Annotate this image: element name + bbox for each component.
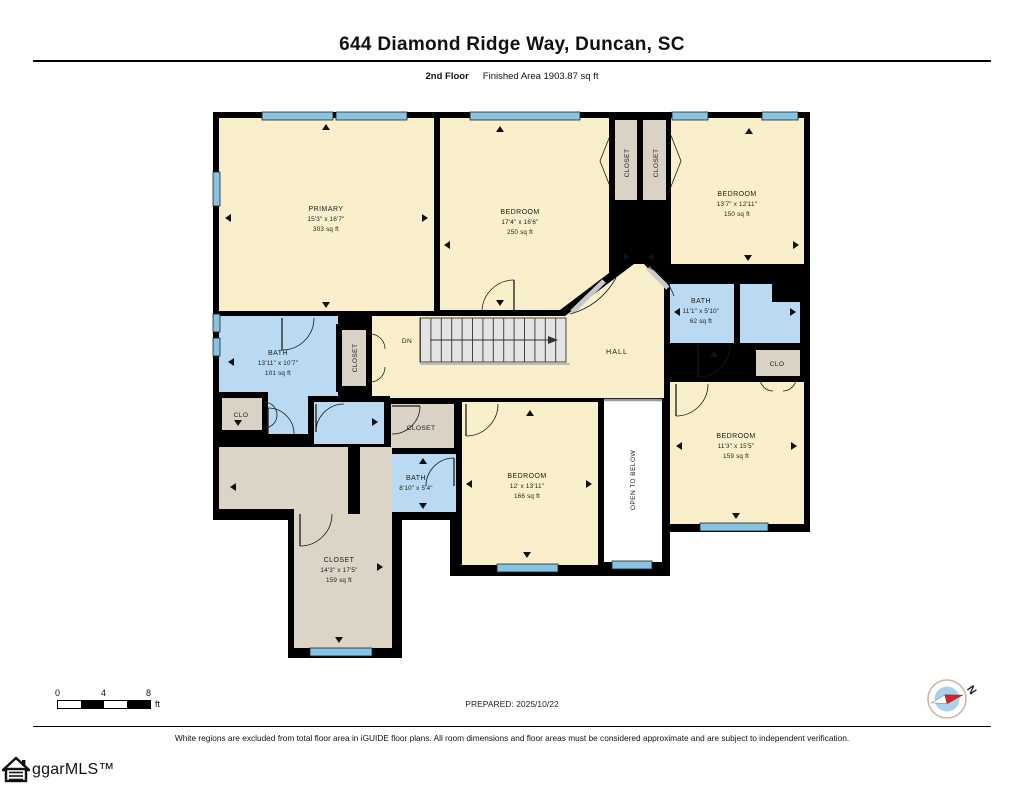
room-primary: PRIMARY 15'3" x 16'7" 303 sq ft — [219, 118, 434, 311]
room-open-to-below: OPEN TO BELOW — [604, 400, 662, 562]
room-label: CLO — [770, 361, 785, 368]
room-label: CLOSET — [624, 149, 631, 178]
room-closet-top-a: CLOSET — [615, 120, 637, 207]
room-label: CLOSET — [653, 149, 660, 178]
room-dims: 14'3" x 17'5" — [320, 567, 357, 574]
room-label: OPEN TO BELOW — [630, 449, 637, 510]
room-bedroom-mid: BEDROOM 12' x 13'11" 166 sq ft — [462, 402, 598, 565]
stairs-dn-label: DN — [402, 338, 412, 345]
room-label: BATH — [268, 350, 288, 357]
prepared-date: PREPARED: 2025/10/22 — [0, 699, 1024, 709]
room-label: CLO — [234, 412, 249, 419]
room-dims: 11'1" x 5'10" — [683, 308, 720, 315]
room-label: CLOSET — [407, 425, 436, 432]
disclaimer-text: White regions are excluded from total fl… — [0, 733, 1024, 743]
room-area: 303 sq ft — [313, 226, 339, 233]
room-label: CLOSET — [324, 557, 355, 564]
room-dims: 11'3" x 15'5" — [718, 443, 755, 450]
room-area: 62 sq ft — [690, 318, 712, 325]
room-label: PRIMARY — [309, 206, 344, 213]
room-closet-mid: CLOSET — [385, 398, 460, 456]
room-closet-big: CLOSET 14'3" x 17'5" 159 sq ft — [213, 447, 392, 648]
mls-logo-text: ggarMLS™ — [32, 761, 115, 779]
room-toilet — [308, 396, 390, 450]
room-area: 150 sq ft — [724, 211, 750, 218]
room-label: BEDROOM — [716, 433, 755, 440]
room-clo-right: CLO — [756, 350, 800, 376]
room-label: BATH — [406, 475, 426, 482]
scale-tick-0: 0 — [55, 688, 60, 698]
room-dims: 12' x 13'11" — [510, 483, 544, 490]
room-area: 166 sq ft — [514, 493, 540, 500]
floorplan-page: 644 Diamond Ridge Way, Duncan, SC 2nd Fl… — [0, 0, 1024, 791]
room-label: BEDROOM — [500, 209, 539, 216]
footer-divider — [33, 726, 991, 727]
room-area: 250 sq ft — [507, 229, 533, 236]
house-icon — [2, 756, 30, 784]
room-label: BEDROOM — [717, 191, 756, 198]
room-dims: 8'10" x 5'4" — [399, 485, 432, 492]
room-area: 101 sq ft — [265, 370, 291, 377]
room-label: HALL — [606, 347, 628, 356]
room-label: BATH — [691, 298, 711, 305]
room-dims: 17'4" x 16'6" — [501, 219, 538, 226]
room-area: 159 sq ft — [326, 577, 352, 584]
room-area: 159 sq ft — [723, 453, 749, 460]
room-closet-stairs: CLOSET — [336, 324, 372, 392]
mls-logo: ggarMLS™ — [2, 756, 115, 784]
room-bedroom-right-top: BEDROOM 13'7" x 12'11" 150 sq ft — [671, 118, 804, 264]
room-dims: 13'7" x 12'11" — [717, 201, 757, 208]
scale-tick-8: 8 — [146, 688, 151, 698]
room-clo-left: CLO — [216, 392, 268, 436]
room-label: BEDROOM — [507, 473, 546, 480]
room-bedroom-top: BEDROOM 17'4" x 16'6" 250 sq ft — [440, 118, 609, 310]
scale-tick-4: 4 — [101, 688, 106, 698]
room-dims: 15'3" x 16'7" — [307, 216, 344, 223]
room-label: CLOSET — [352, 344, 359, 373]
room-dims: 13'11" x 10'7" — [258, 360, 298, 367]
staircase: DN — [402, 318, 570, 364]
room-closet-top-b: CLOSET — [643, 120, 666, 207]
floor-plan-drawing: PRIMARY 15'3" x 16'7" 303 sq ft BEDROOM … — [0, 0, 1024, 791]
room-bedroom-right-bottom: BEDROOM 11'3" x 15'5" 159 sq ft — [670, 382, 804, 524]
